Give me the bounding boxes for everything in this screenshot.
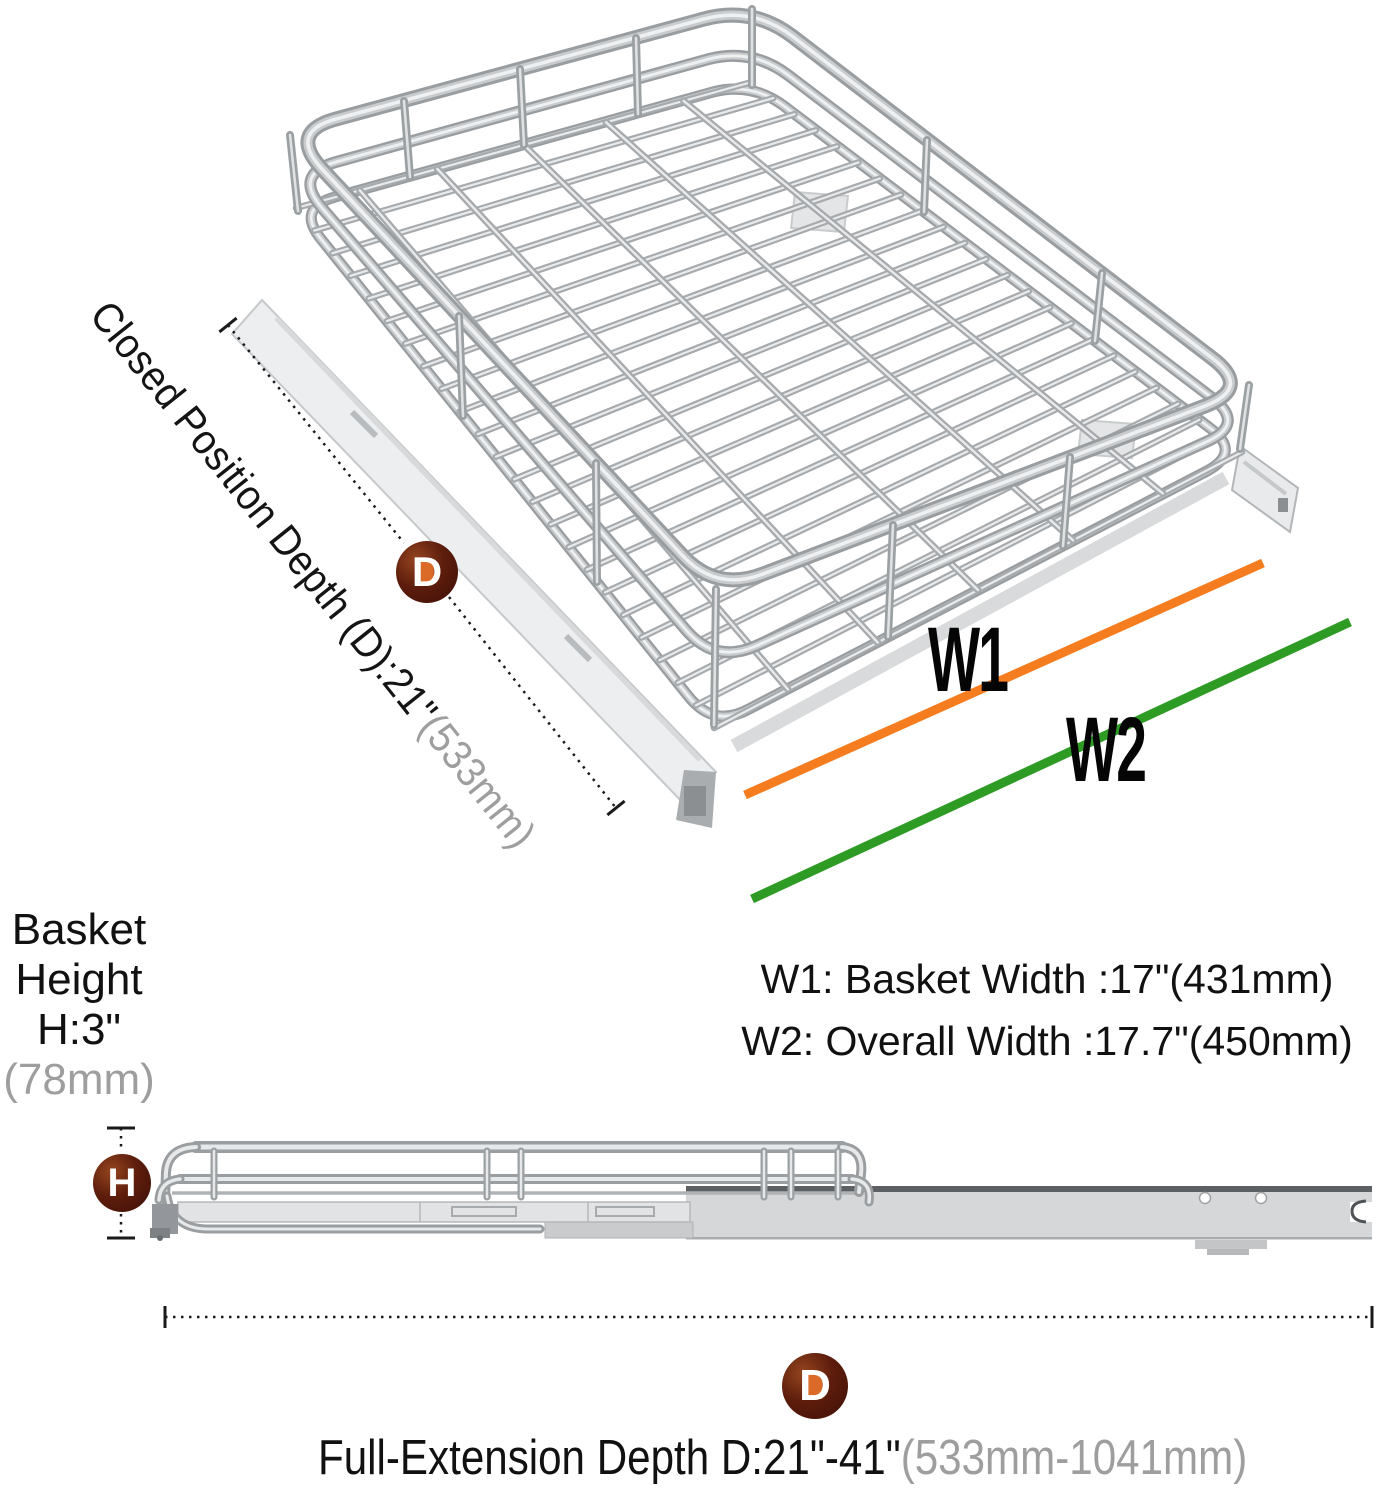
extension-badge: D (782, 1353, 848, 1419)
full-extension-label-text: Full-Extension Depth D:21"-41" (318, 1431, 901, 1485)
basket-height-value: H:3" (0, 1005, 158, 1055)
full-extension-metric: (533mm-1041mm) (901, 1431, 1248, 1485)
product-dimension-diagram: Closed Position Depth (D):21"(533mm) W1 … (0, 0, 1378, 1494)
w2-description: W2: Overall Width :17.7"(450mm) (716, 1010, 1378, 1072)
w1-description: W1: Basket Width :17"(431mm) (716, 948, 1378, 1010)
basket-height-word1: Basket (0, 905, 158, 955)
basket-height-label: Basket Height H:3" (78mm) (0, 905, 158, 1105)
basket-height-metric: (78mm) (0, 1055, 158, 1105)
width-descriptions: W1: Basket Width :17"(431mm) W2: Overall… (716, 948, 1378, 1072)
depth-badge: D (396, 541, 458, 603)
w1-tag-label: W1 (928, 608, 1007, 713)
basket-vertical-posts (290, 9, 1249, 725)
extension-badge-letter: D (799, 1364, 831, 1408)
extension-dimension-line (165, 1306, 1372, 1328)
w2-tag-label: W2 (1066, 698, 1145, 803)
height-badge: H (93, 1154, 151, 1212)
depth-badge-letter: D (412, 551, 442, 593)
illustration-layer (0, 0, 1378, 1494)
full-extension-label: Full-Extension Depth D:21"-41"(533mm-104… (318, 1430, 1247, 1486)
basket-height-word2: Height (0, 955, 158, 1005)
height-badge-letter: H (108, 1163, 137, 1203)
side-view-illustration (150, 1147, 1378, 1255)
